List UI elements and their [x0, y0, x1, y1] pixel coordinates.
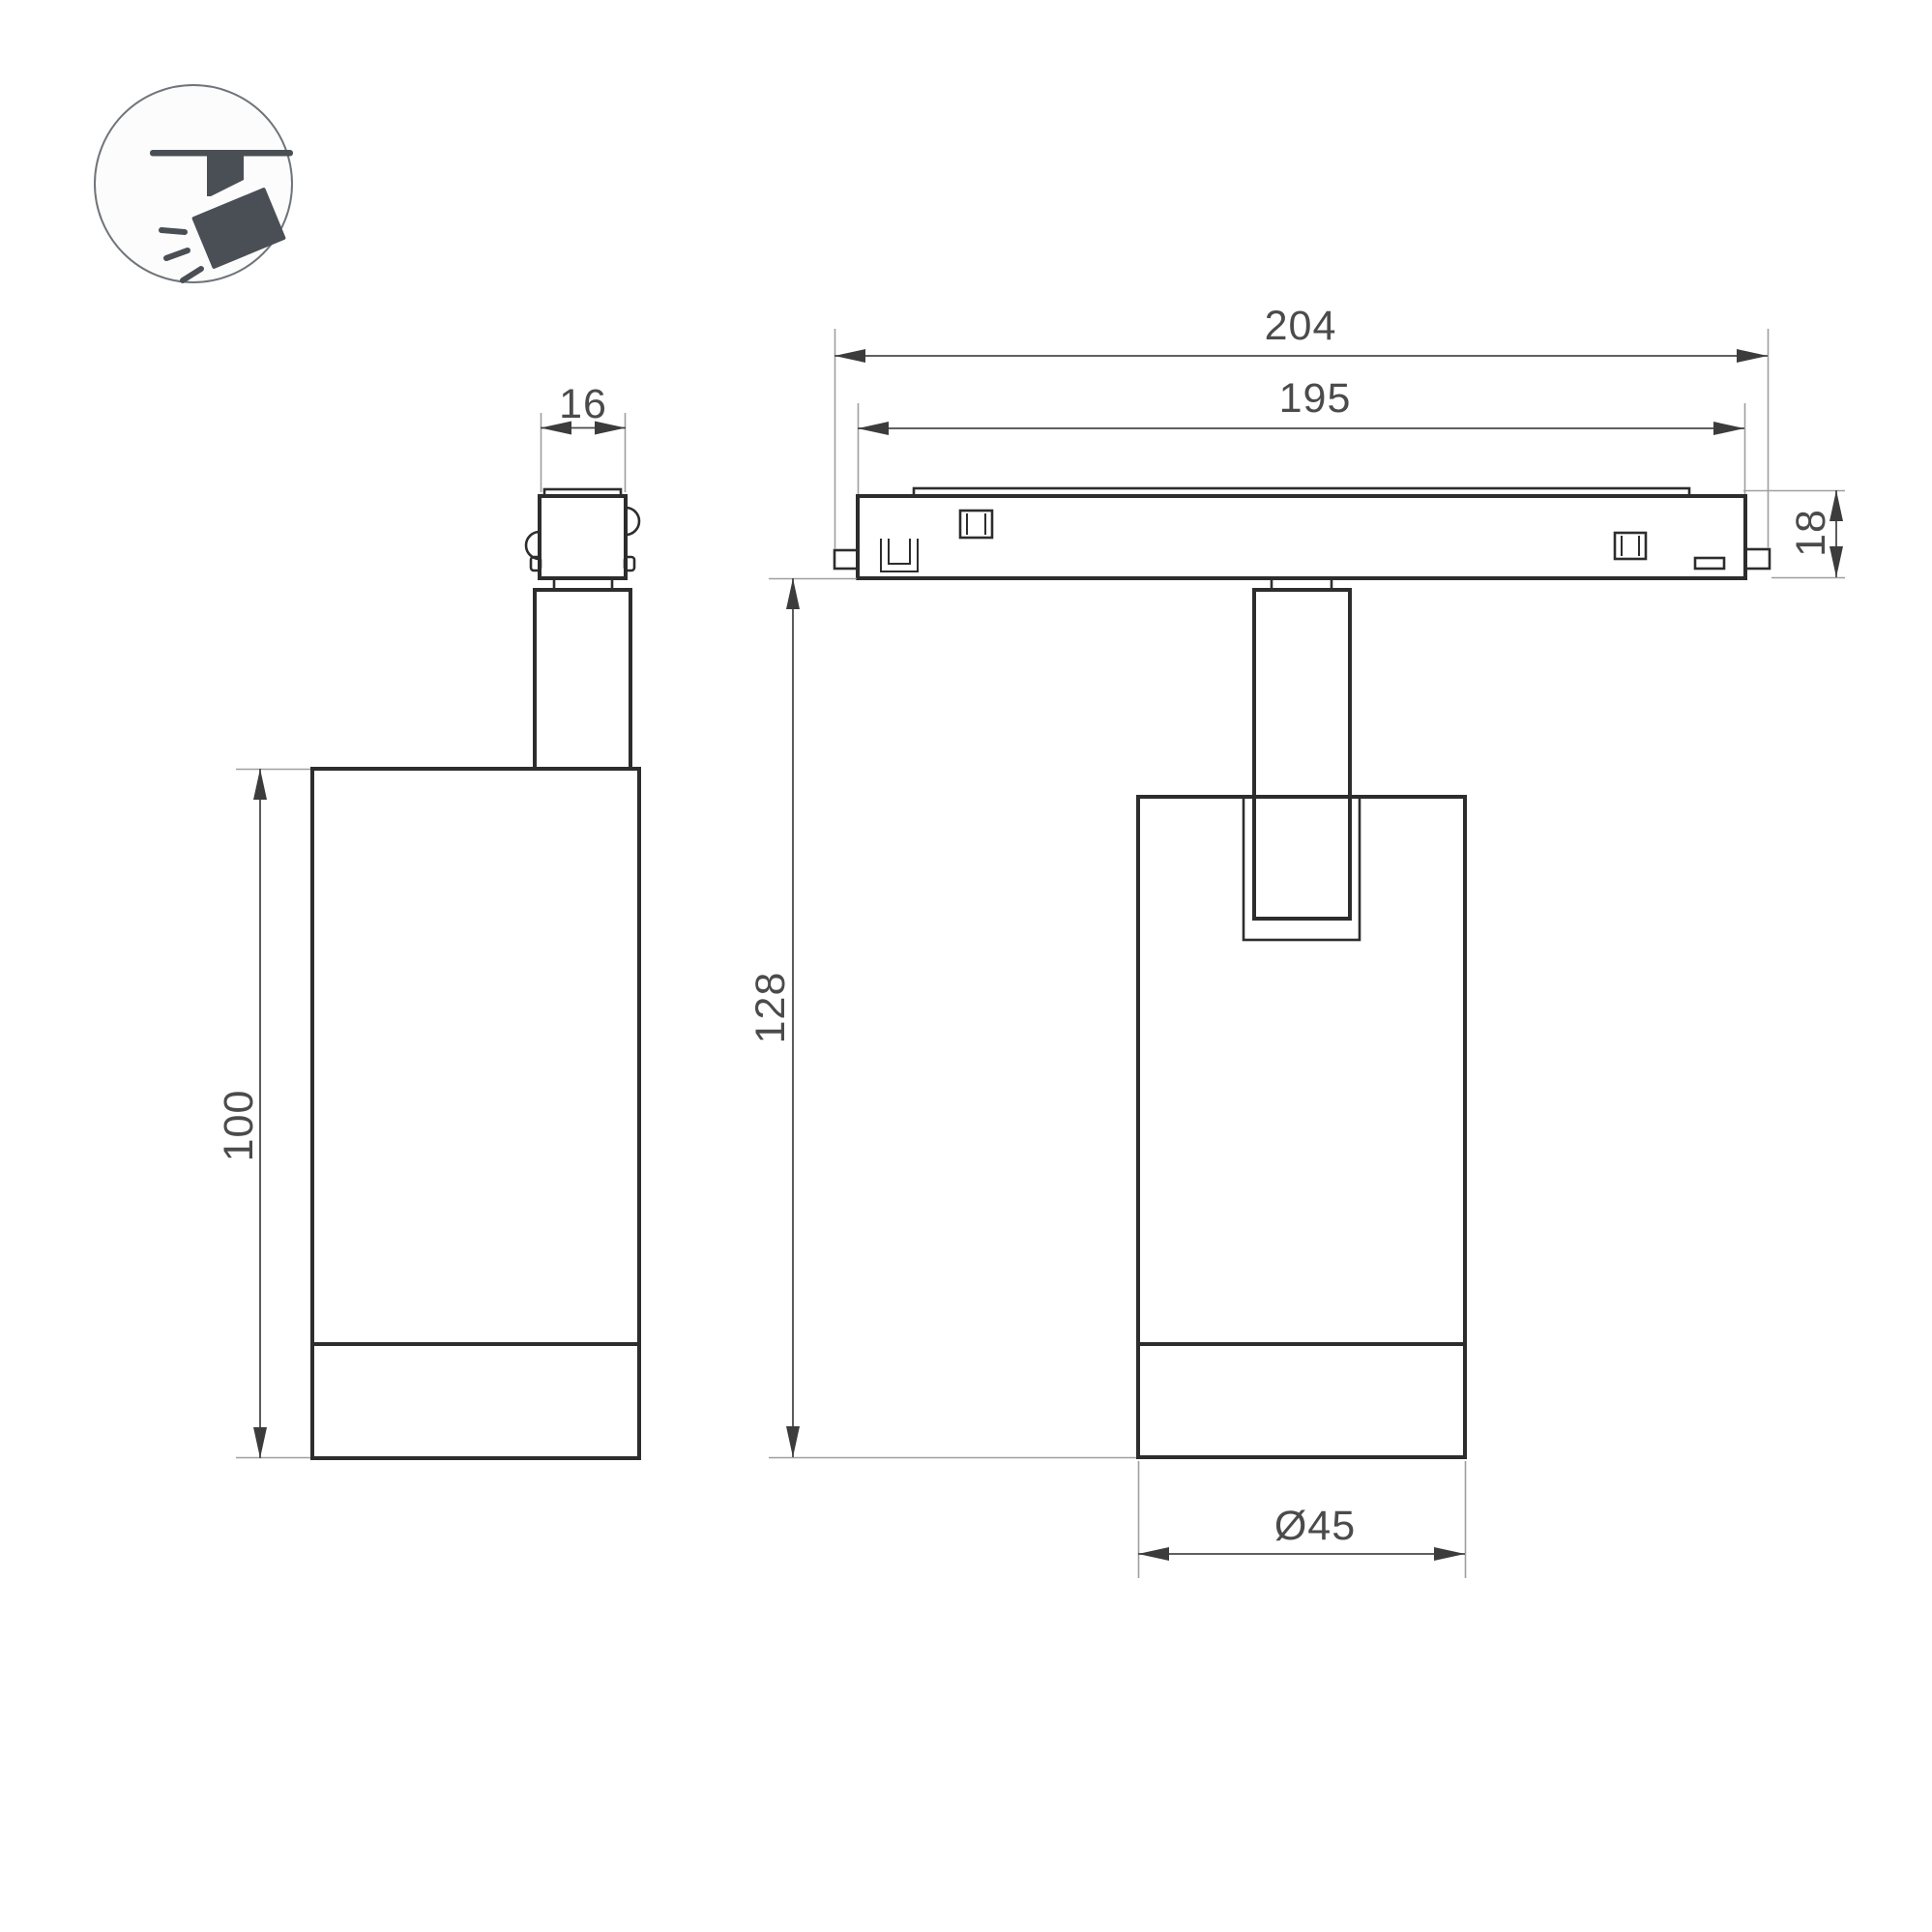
track-clip-outer [881, 539, 918, 571]
dimension-195: 195 [858, 375, 1745, 494]
lamp-body-front [1138, 797, 1465, 1457]
lamp-body-side [312, 769, 639, 1458]
track-clip-inner [889, 539, 910, 564]
track-end-tab-left [834, 550, 858, 569]
dimension-diameter-45: Ø45 [1138, 1461, 1466, 1578]
track-slot-right [1695, 558, 1724, 569]
spotlight-icon [95, 85, 293, 282]
dim-204-label: 204 [1265, 303, 1337, 349]
dim-16-label: 16 [559, 381, 607, 427]
front-view: 204 195 18 128 [747, 303, 1845, 1578]
dim-18-label: 18 [1788, 509, 1834, 557]
dim-128-label: 128 [747, 972, 794, 1044]
track-end-tab-right [1745, 549, 1770, 569]
side-view: 16 100 [216, 381, 639, 1458]
adapter-side-bump-right [626, 508, 639, 535]
adapter-head [540, 496, 626, 578]
dimension-16: 16 [541, 381, 626, 492]
track-contact-left [960, 511, 992, 538]
stem-side [535, 590, 630, 769]
dimension-18: 18 [1743, 490, 1845, 578]
adapter-side-bump-left [526, 532, 540, 559]
track-contact-right [1615, 533, 1646, 559]
dim-100-label: 100 [216, 1090, 262, 1162]
technical-drawing-page: 16 100 [0, 0, 1932, 1932]
dim-195-label: 195 [1279, 375, 1352, 422]
dimension-drawing: 16 100 [0, 0, 1932, 1932]
icon-light-ray [161, 230, 185, 232]
icon-circle [95, 85, 292, 282]
dimension-100: 100 [216, 769, 310, 1458]
dimension-128: 128 [747, 578, 1136, 1458]
dim-diameter-45-label: Ø45 [1274, 1503, 1356, 1549]
icon-ceiling-bar [150, 150, 293, 157]
stem-front [1254, 590, 1350, 919]
dimension-204: 204 [834, 303, 1769, 549]
